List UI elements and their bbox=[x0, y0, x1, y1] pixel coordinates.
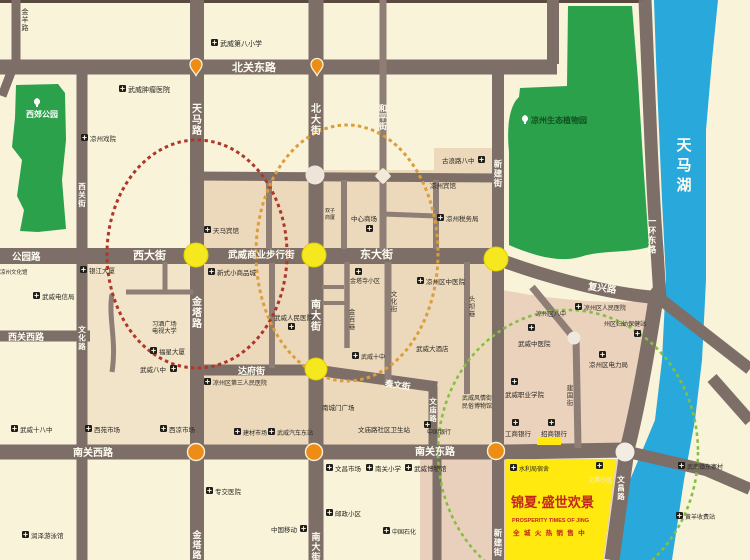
svg-text:武威中医院: 武威中医院 bbox=[518, 339, 551, 348]
svg-text:新建街: 新建街 bbox=[493, 528, 503, 557]
svg-text:新式小商品城: 新式小商品城 bbox=[217, 268, 257, 277]
svg-text:武威博物馆: 武威博物馆 bbox=[414, 464, 447, 473]
svg-text:武威八中: 武威八中 bbox=[140, 365, 166, 374]
svg-text:金百巷: 金百巷 bbox=[349, 307, 356, 331]
svg-text:金塔路: 金塔路 bbox=[191, 295, 203, 330]
svg-text:银江大厦: 银江大厦 bbox=[89, 266, 116, 275]
svg-text:文昌小区: 文昌小区 bbox=[588, 476, 612, 484]
svg-text:公园路: 公园路 bbox=[12, 251, 41, 263]
svg-text:西苑市场: 西苑市场 bbox=[94, 425, 121, 434]
svg-text:福星大厦: 福星大厦 bbox=[159, 347, 186, 356]
svg-text:文昌路: 文昌路 bbox=[617, 474, 625, 501]
svg-text:南大街: 南大街 bbox=[310, 531, 320, 560]
svg-text:中心商场: 中心商场 bbox=[351, 214, 378, 223]
svg-text:武威第八小学: 武威第八小学 bbox=[220, 39, 262, 48]
svg-text:古浪路八中: 古浪路八中 bbox=[442, 156, 475, 165]
svg-text:凉州生态植物园: 凉州生态植物园 bbox=[531, 115, 587, 125]
svg-text:文昌市场: 文昌市场 bbox=[335, 464, 362, 473]
svg-text:中国石化: 中国石化 bbox=[392, 528, 416, 536]
svg-text:金羊路: 金羊路 bbox=[22, 7, 29, 32]
svg-text:天马宾馆: 天马宾馆 bbox=[213, 226, 240, 235]
svg-text:南关西路: 南关西路 bbox=[73, 446, 114, 459]
svg-text:凉州税务局: 凉州税务局 bbox=[446, 214, 479, 223]
svg-text:西凉市场: 西凉市场 bbox=[169, 425, 196, 434]
svg-text:达府街: 达府街 bbox=[238, 365, 265, 376]
svg-text:武威肿瘤医院: 武威肿瘤医院 bbox=[128, 85, 170, 94]
svg-text:武威电信局: 武威电信局 bbox=[42, 292, 75, 301]
svg-text:西关西路: 西关西路 bbox=[8, 331, 45, 342]
svg-text:天马路: 天马路 bbox=[192, 103, 203, 137]
svg-text:招商银行: 招商银行 bbox=[541, 429, 568, 438]
svg-text:凉州区第三人民医院: 凉州区第三人民医院 bbox=[213, 379, 267, 387]
svg-text:双子: 双子 bbox=[325, 207, 335, 214]
svg-text:武威大酒店: 武威大酒店 bbox=[416, 344, 449, 353]
svg-text:凉州区中医院: 凉州区中医院 bbox=[426, 277, 466, 286]
svg-text:武威商业步行街: 武威商业步行街 bbox=[228, 249, 295, 261]
svg-text:金塔寺小区: 金塔寺小区 bbox=[350, 277, 380, 285]
svg-text:凉州文化馆: 凉州文化馆 bbox=[0, 268, 28, 276]
svg-text:和平街: 和平街 bbox=[378, 103, 387, 131]
svg-text:北关东路: 北关东路 bbox=[232, 60, 277, 74]
svg-text:专交医院: 专交医院 bbox=[215, 487, 242, 496]
svg-text:天马湖: 天马湖 bbox=[676, 137, 692, 194]
svg-text:PROSPERITY TIMES OF JING: PROSPERITY TIMES OF JING bbox=[512, 518, 589, 524]
svg-text:武威十中: 武威十中 bbox=[361, 353, 385, 361]
svg-text:西郊公园: 西郊公园 bbox=[26, 109, 58, 119]
svg-text:全城火热销售中: 全城火热销售中 bbox=[512, 528, 589, 537]
svg-text:武威汽车东站: 武威汽车东站 bbox=[277, 429, 313, 437]
svg-text:武威职业学院: 武威职业学院 bbox=[505, 390, 545, 399]
svg-text:建材市场: 建材市场 bbox=[243, 429, 267, 437]
svg-text:文化路: 文化路 bbox=[78, 324, 86, 351]
svg-text:头坝巷: 头坝巷 bbox=[469, 294, 476, 318]
svg-text:武威十八中: 武威十八中 bbox=[20, 425, 53, 434]
svg-text:邮政小区: 邮政小区 bbox=[335, 509, 362, 518]
svg-text:电视大学: 电视大学 bbox=[152, 327, 177, 335]
svg-text:南城门广场: 南城门广场 bbox=[322, 403, 355, 412]
svg-text:北大街: 北大街 bbox=[310, 102, 321, 137]
svg-text:凉州区八中: 凉州区八中 bbox=[536, 310, 566, 318]
svg-text:工商银行: 工商银行 bbox=[505, 429, 532, 438]
svg-text:西大街: 西大街 bbox=[133, 248, 166, 262]
svg-text:凉州戏院: 凉州戏院 bbox=[90, 134, 117, 143]
svg-text:商厦: 商厦 bbox=[325, 214, 335, 221]
svg-text:黄羊收费站: 黄羊收费站 bbox=[685, 513, 715, 521]
svg-text:建国街: 建国街 bbox=[567, 383, 574, 407]
svg-text:金塔路: 金塔路 bbox=[191, 529, 202, 560]
svg-text:西关街: 西关街 bbox=[77, 182, 86, 208]
svg-text:南关东路: 南关东路 bbox=[415, 445, 456, 458]
svg-text:凉州区电力局: 凉州区电力局 bbox=[589, 360, 628, 369]
svg-text:中国移动: 中国移动 bbox=[271, 525, 298, 534]
svg-text:水利局宿舍: 水利局宿舍 bbox=[519, 465, 549, 473]
svg-text:民俗博物馆: 民俗博物馆 bbox=[462, 402, 492, 410]
svg-text:州区妇幼保健站: 州区妇幼保健站 bbox=[604, 320, 646, 328]
svg-text:武威风情街: 武威风情街 bbox=[462, 394, 492, 402]
svg-text:习酒广场: 习酒广场 bbox=[152, 320, 177, 328]
svg-text:东大街: 东大街 bbox=[360, 247, 393, 261]
svg-text:凉州区人民医院: 凉州区人民医院 bbox=[584, 304, 626, 312]
svg-text:武威人民医院: 武威人民医院 bbox=[274, 313, 314, 322]
svg-text:凉州宾馆: 凉州宾馆 bbox=[430, 181, 457, 190]
svg-text:润泽游泳馆: 润泽游泳馆 bbox=[31, 531, 64, 540]
svg-text:中国银行: 中国银行 bbox=[427, 428, 451, 436]
svg-text:文庙路: 文庙路 bbox=[429, 396, 437, 423]
svg-text:南关小学: 南关小学 bbox=[375, 464, 402, 473]
svg-text:一环东路: 一环东路 bbox=[648, 216, 657, 255]
svg-text:武南镇东寨村: 武南镇东寨村 bbox=[687, 463, 723, 471]
svg-text:新建街: 新建街 bbox=[493, 159, 503, 188]
svg-text:文化街: 文化街 bbox=[391, 289, 398, 313]
svg-text:文庙路社区卫生站: 文庙路社区卫生站 bbox=[358, 425, 411, 434]
svg-text:锦夏·盛世欢景: 锦夏·盛世欢景 bbox=[511, 494, 594, 510]
